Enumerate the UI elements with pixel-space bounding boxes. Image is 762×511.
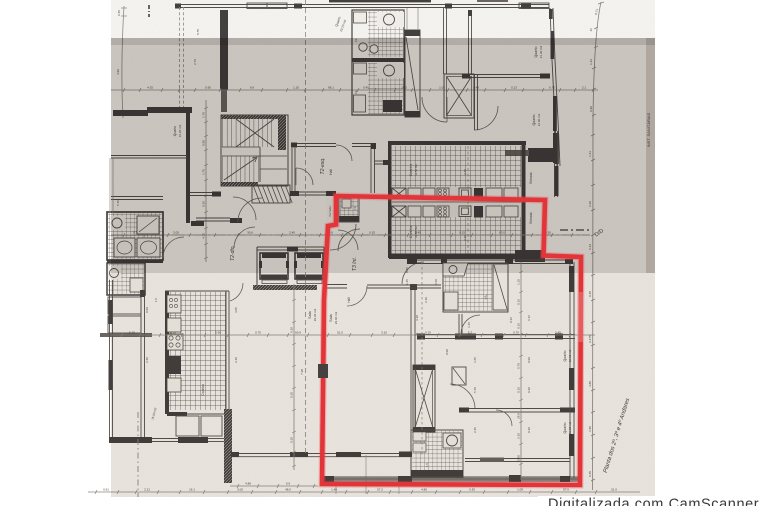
svg-text:Digitalizada com CamScanner: Digitalizada com CamScanner [548, 497, 759, 507]
svg-text:5.75: 5.75 [196, 29, 200, 35]
svg-text:0.45: 0.45 [117, 10, 121, 16]
svg-text:0.61: 0.61 [103, 488, 109, 492]
